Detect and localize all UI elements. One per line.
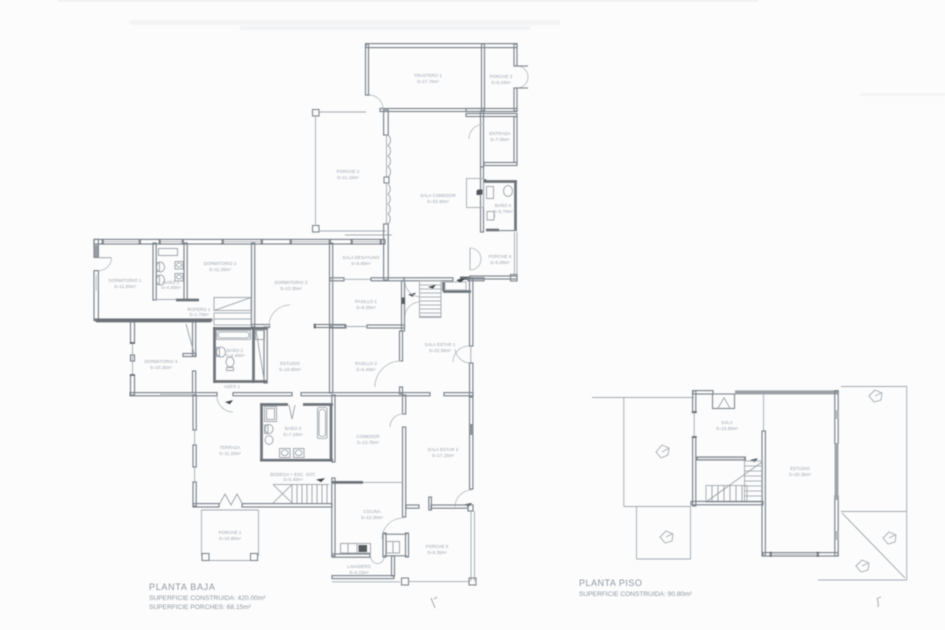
svg-text:S=7.05m²: S=7.05m² xyxy=(490,137,510,142)
svg-text:S=17.70m²: S=17.70m² xyxy=(417,79,440,84)
svg-text:PLANTA PISO: PLANTA PISO xyxy=(579,578,642,588)
svg-text:COMEDOR: COMEDOR xyxy=(356,434,379,439)
svg-text:S=15.80m²: S=15.80m² xyxy=(716,426,739,431)
svg-text:SUPERFICIE CONSTRUIDA: 90.80m²: SUPERFICIE CONSTRUIDA: 90.80m² xyxy=(579,591,693,598)
svg-text:BAÑO 4: BAÑO 4 xyxy=(495,203,512,208)
svg-text:PLANTA BAJA: PLANTA BAJA xyxy=(149,582,216,592)
svg-text:S=10.90m²: S=10.90m² xyxy=(279,367,302,372)
svg-text:S=5.70m²: S=5.70m² xyxy=(493,209,513,214)
svg-text:S=12.30m²: S=12.30m² xyxy=(361,515,384,520)
svg-text:PORCHE 3: PORCHE 3 xyxy=(490,74,513,79)
svg-text:PORCHE 5: PORCHE 5 xyxy=(426,544,449,549)
svg-text:S=9.35m²: S=9.35m² xyxy=(356,305,376,310)
svg-text:S=1.70m²: S=1.70m² xyxy=(189,312,209,317)
svg-text:S=4.45m²: S=4.45m² xyxy=(161,285,181,290)
svg-text:S=5.95m²: S=5.95m² xyxy=(490,260,510,265)
svg-text:ASEO 1: ASEO 1 xyxy=(224,384,241,389)
svg-text:ENTRADA: ENTRADA xyxy=(489,131,510,136)
svg-text:PORCHE 1: PORCHE 1 xyxy=(219,530,242,535)
svg-text:SALA DESAYUNO: SALA DESAYUNO xyxy=(342,255,380,260)
svg-text:S=33.40m²: S=33.40m² xyxy=(427,199,450,204)
svg-text:DORMITORIO 1: DORMITORIO 1 xyxy=(109,278,142,283)
svg-text:PORCHE 2: PORCHE 2 xyxy=(337,169,360,174)
svg-text:S=6.10m²: S=6.10m² xyxy=(491,80,511,85)
svg-text:TRASTERO 1: TRASTERO 1 xyxy=(414,73,442,78)
svg-text:S=10.35m²: S=10.35m² xyxy=(150,365,173,370)
svg-text:PASILLO 1: PASILLO 1 xyxy=(355,299,378,304)
svg-text:S=20.35m²: S=20.35m² xyxy=(789,472,812,477)
svg-text:ESTUDIO: ESTUDIO xyxy=(280,361,300,366)
svg-text:COCINA: COCINA xyxy=(363,509,380,514)
svg-text:S=22.55m²: S=22.55m² xyxy=(429,348,452,353)
svg-text:TERRAZA: TERRAZA xyxy=(220,445,241,450)
svg-text:LAVADERO: LAVADERO xyxy=(347,564,371,569)
svg-text:ESTUDIO: ESTUDIO xyxy=(790,466,810,471)
svg-text:SUPERFICIE PORCHES: 68.15m²: SUPERFICIE PORCHES: 68.15m² xyxy=(149,604,252,611)
svg-text:S=6.40m²: S=6.40m² xyxy=(356,367,376,372)
svg-text:S=7.10m²: S=7.10m² xyxy=(283,432,303,437)
svg-text:S=4.15m²: S=4.15m² xyxy=(349,570,369,575)
svg-text:PASILLO 2: PASILLO 2 xyxy=(355,361,378,366)
svg-text:S=5.40m²: S=5.40m² xyxy=(283,477,303,482)
svg-text:PORCHE 4: PORCHE 4 xyxy=(489,254,512,259)
svg-text:S=17.15m²: S=17.15m² xyxy=(432,453,455,458)
svg-text:SALA: SALA xyxy=(721,420,732,425)
svg-text:S=11.60m²: S=11.60m² xyxy=(114,284,136,289)
svg-text:SALA ESTAR 1: SALA ESTAR 1 xyxy=(425,342,456,347)
svg-text:S=11.20m²: S=11.20m² xyxy=(219,451,241,456)
svg-text:S=21.15m²: S=21.15m² xyxy=(337,175,360,180)
svg-text:BAÑO 3: BAÑO 3 xyxy=(285,426,302,431)
svg-text:S=10.80m²: S=10.80m² xyxy=(219,536,242,541)
svg-text:DORMITORIO 2: DORMITORIO 2 xyxy=(204,261,237,266)
svg-text:SUPERFICIE CONSTRUIDA: 420.00m: SUPERFICIE CONSTRUIDA: 420.00m² xyxy=(149,595,266,602)
svg-text:S=4.40m²: S=4.40m² xyxy=(225,353,245,358)
svg-text:S=11.35m²: S=11.35m² xyxy=(209,267,231,272)
svg-text:S=13.35m²: S=13.35m² xyxy=(280,286,303,291)
svg-text:S=13.75m²: S=13.75m² xyxy=(357,440,380,445)
svg-text:SALA COMEDOR: SALA COMEDOR xyxy=(420,193,456,198)
svg-text:S=9.80m²: S=9.80m² xyxy=(351,261,371,266)
svg-text:DORMITORIO 3: DORMITORIO 3 xyxy=(275,280,308,285)
svg-text:DORMITORIO 4: DORMITORIO 4 xyxy=(145,359,178,364)
svg-text:SALA ESTAR 2: SALA ESTAR 2 xyxy=(428,447,459,452)
svg-text:S=9.35m²: S=9.35m² xyxy=(427,550,447,555)
